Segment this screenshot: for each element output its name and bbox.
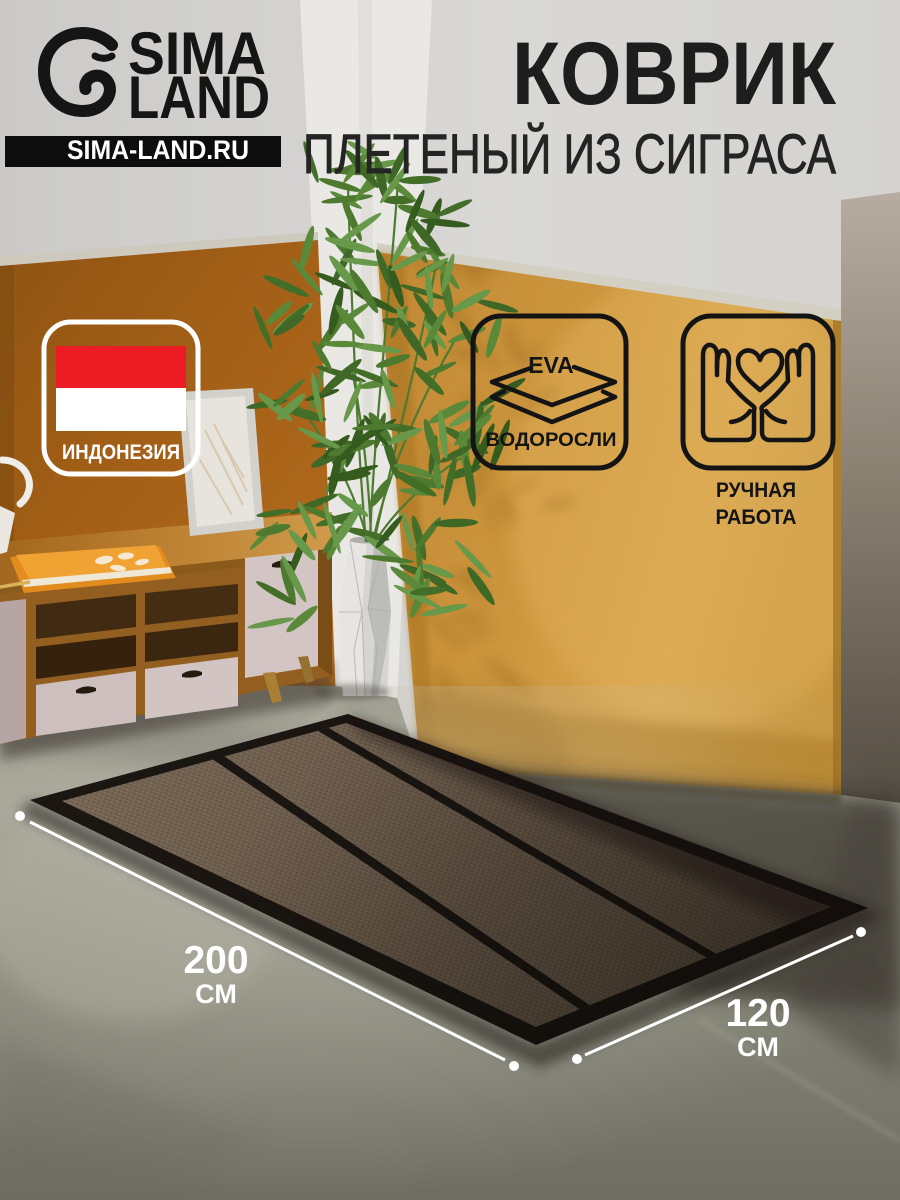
svg-text:120: 120 (725, 992, 790, 1035)
svg-text:EVA: EVA (528, 352, 574, 378)
svg-text:ПЛЕТЕНЫЙ ИЗ СИГРАСА: ПЛЕТЕНЫЙ ИЗ СИГРАСА (303, 122, 837, 185)
svg-text:ВОДОРОСЛИ: ВОДОРОСЛИ (486, 430, 617, 451)
svg-text:ИНДОНЕЗИЯ: ИНДОНЕЗИЯ (62, 441, 180, 464)
svg-text:200: 200 (183, 939, 248, 982)
svg-text:LAND: LAND (128, 64, 270, 131)
svg-text:СМ: СМ (195, 979, 237, 1009)
svg-text:РАБОТА: РАБОТА (716, 506, 797, 529)
svg-text:КОВРИК: КОВРИК (512, 23, 837, 123)
svg-text:SIMA-LAND.RU: SIMA-LAND.RU (67, 135, 249, 165)
svg-text:СМ: СМ (737, 1032, 779, 1062)
svg-text:РУЧНАЯ: РУЧНАЯ (716, 479, 796, 502)
